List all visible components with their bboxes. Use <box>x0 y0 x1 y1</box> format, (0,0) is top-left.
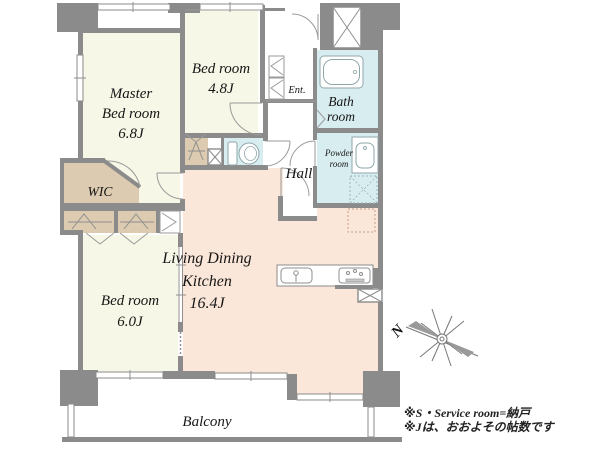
label-master-3: 6.8J <box>118 126 145 142</box>
shoe-cabinet <box>269 56 284 99</box>
ldk-side-storage <box>160 211 180 233</box>
pillar-bottom-left <box>60 370 98 406</box>
pillar-top-left <box>57 3 98 32</box>
label-wic: WIC <box>88 184 114 199</box>
floorplan-svg: N Master Bed room 6.8J Bed room 4.8J Bed… <box>0 0 600 450</box>
label-bedroom60-2: 6.0J <box>117 314 144 330</box>
balcony-outer-rail <box>62 437 402 442</box>
label-powder-2: room <box>330 159 349 169</box>
powder-room-door <box>290 141 315 166</box>
compass-north-label: N <box>388 321 409 341</box>
label-ldk-3: 16.4J <box>189 295 225 312</box>
bathtub <box>320 56 363 88</box>
label-balcony: Balcony <box>182 414 231 430</box>
label-ldk-1: Living Dining <box>161 250 251 267</box>
footnotes: ※S・Service room=納戸 ※Jは、おおよその帖数です <box>404 406 556 434</box>
label-ldk-2: Kitchen <box>181 273 232 290</box>
kitchen-counter <box>277 265 373 289</box>
pipe-space-box-kitchen <box>358 289 382 302</box>
label-hall: Hall <box>285 166 313 182</box>
powder-sink <box>352 137 378 173</box>
label-entrance: Ent. <box>287 85 305 96</box>
label-bathroom-1: Bath <box>328 94 354 109</box>
kitchen-stove <box>339 268 370 283</box>
label-master-2: Bed room <box>102 106 160 122</box>
label-powder-1: Powder <box>324 148 353 158</box>
toilet <box>228 142 259 165</box>
pillar-bottom-right <box>363 371 400 407</box>
counter-end-wall <box>335 285 373 289</box>
label-bedroom60-1: Bed room <box>101 293 159 309</box>
footnote-line1: ※S・Service room=納戸 <box>404 406 532 420</box>
entry-door <box>292 14 318 40</box>
room-ldk-d <box>290 375 363 396</box>
toilet-door <box>265 141 290 166</box>
label-master-1: Master <box>109 86 153 102</box>
kitchen-sink <box>281 268 312 283</box>
label-bedroom48-1: Bed room <box>192 61 250 77</box>
label-bedroom48-2: 4.8J <box>208 81 235 97</box>
footnote-line2: ※Jは、おおよその帖数です <box>404 420 556 434</box>
label-bathroom-2: room <box>327 109 355 124</box>
pipe-space-box-closet <box>208 149 222 165</box>
floorplan-canvas: N Master Bed room 6.8J Bed room 4.8J Bed… <box>0 0 600 450</box>
elevator-shaft-box <box>333 7 361 48</box>
room-ldk-a <box>183 168 283 375</box>
compass <box>406 309 478 366</box>
